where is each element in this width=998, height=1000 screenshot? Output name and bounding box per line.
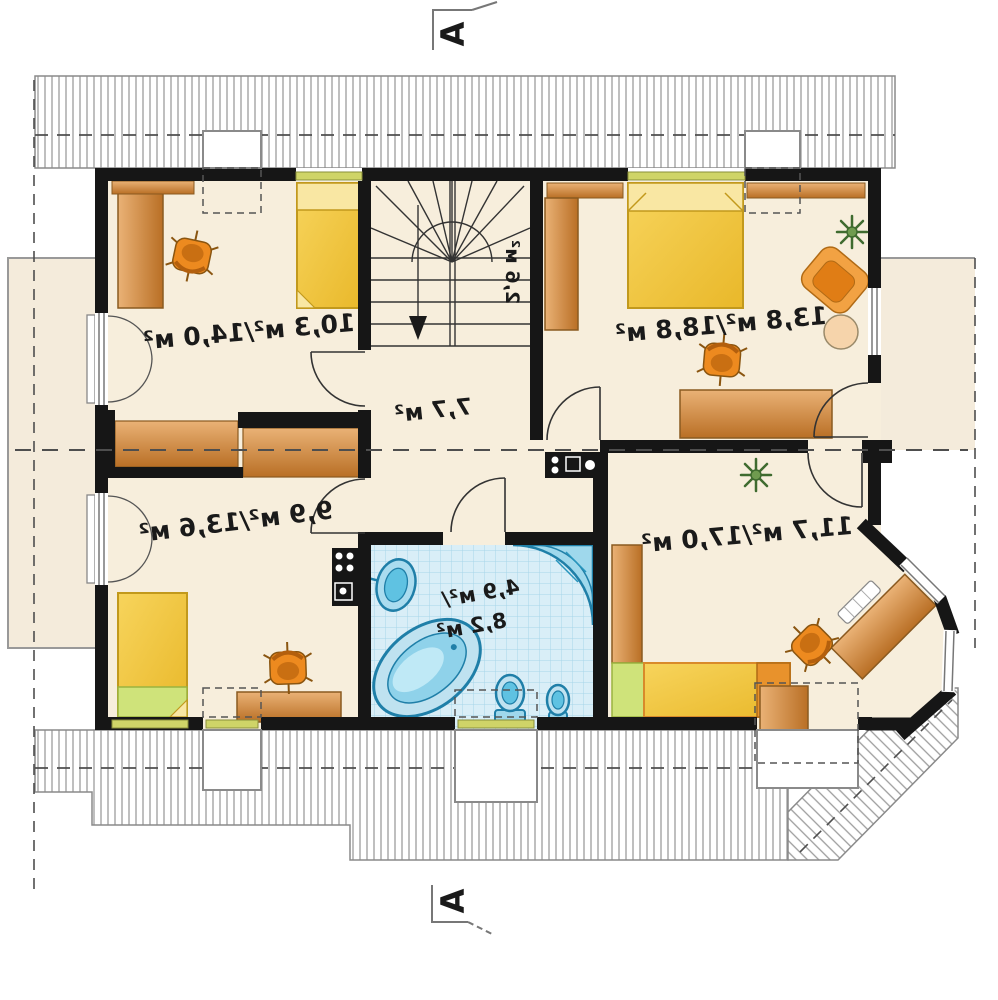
label-stairs: 2,6 м² bbox=[501, 240, 523, 304]
dormer-window-glass bbox=[458, 720, 534, 728]
side-table bbox=[824, 315, 858, 349]
chimney-block-corridor bbox=[545, 452, 603, 478]
dormer-window-glass bbox=[206, 720, 258, 728]
wardrobe bbox=[545, 198, 578, 330]
dormer-bathroom bbox=[455, 730, 537, 802]
section-marker-top: A bbox=[433, 2, 497, 50]
plant-icon bbox=[741, 459, 771, 491]
dormer-top-right bbox=[745, 131, 800, 168]
wardrobe-lower bbox=[243, 428, 367, 477]
desk bbox=[680, 390, 832, 438]
toilet bbox=[495, 675, 525, 727]
dormer-top-left bbox=[203, 131, 261, 168]
terrace-glazed-door bbox=[868, 288, 881, 355]
low-attic-left bbox=[8, 258, 96, 648]
knee-window bbox=[112, 720, 188, 728]
wardrobe-strip bbox=[747, 183, 865, 198]
shelf bbox=[112, 181, 194, 194]
bed-pillow bbox=[297, 183, 363, 210]
bed-pillows bbox=[628, 183, 743, 211]
terrace bbox=[881, 258, 975, 450]
wardrobe-strip bbox=[547, 183, 623, 198]
section-marker-bottom: A bbox=[432, 885, 492, 934]
desk bbox=[118, 185, 163, 308]
bed-pillow bbox=[612, 663, 644, 717]
section-letter-top: A bbox=[434, 21, 472, 46]
floor-plan: 10,3 м²/14,0 м² 13,8 м²/18,8 м² 9,9 м²/1… bbox=[0, 0, 998, 1000]
dormer-bottom-left bbox=[203, 730, 261, 790]
section-letter-bottom: A bbox=[434, 888, 472, 913]
chimney-block-bathroom bbox=[332, 548, 358, 606]
dormer-bottom-right bbox=[757, 730, 858, 788]
floor-plan-canvas: 10,3 м²/14,0 м² 13,8 м²/18,8 м² 9,9 м²/1… bbox=[0, 0, 998, 1000]
wardrobe-upper bbox=[115, 421, 238, 467]
plant-icon bbox=[837, 216, 867, 248]
wardrobe bbox=[612, 545, 642, 663]
